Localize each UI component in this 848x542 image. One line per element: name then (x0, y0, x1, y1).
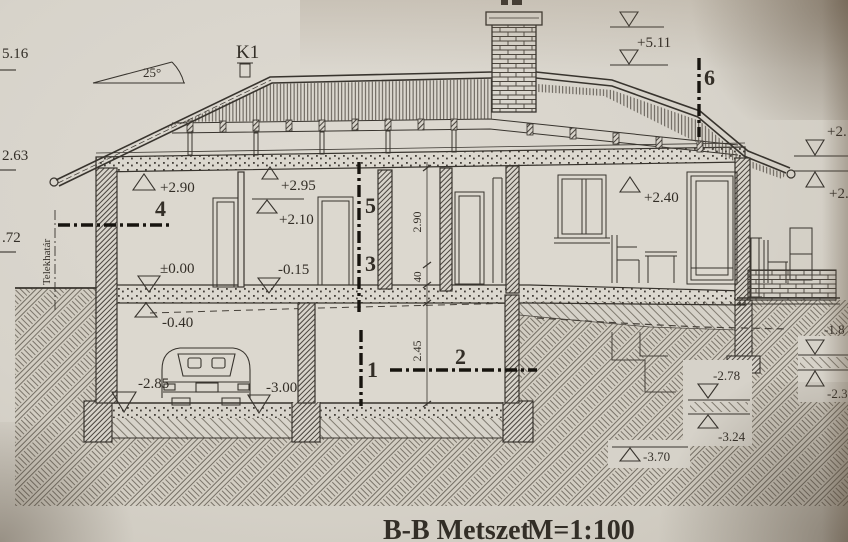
level-right-cut-lower: +2. (829, 186, 848, 202)
level-attic-left: +2.90 (160, 180, 195, 196)
window (554, 175, 610, 243)
gutter-right (787, 170, 795, 178)
roof-pitch-label: 25° (143, 65, 161, 80)
ridge-vent (237, 63, 253, 77)
terrain-2: -2.78 (713, 368, 740, 383)
dim-ground-height: 2.90 (410, 212, 424, 233)
property-line-label: Telekhatár (41, 239, 53, 286)
terrain-3: -3.24 (718, 429, 746, 444)
terrain-1: -1.8 (824, 322, 845, 337)
terrain-5: -3.70 (643, 449, 670, 464)
drawing-scale: M=1:100 (527, 515, 635, 542)
level-attic-right: +2.40 (644, 190, 679, 206)
level-garage-floor: -2.85 (138, 376, 169, 392)
title-block: B-B Metszet M=1:100 (383, 515, 635, 542)
section-mark-4: 4 (155, 196, 166, 221)
level-basement-floor: -3.00 (266, 380, 297, 396)
section-mark-1: 1 (367, 357, 378, 382)
level-right-cut-upper: +2. (827, 124, 847, 140)
level-zero: ±0.00 (160, 261, 194, 277)
section-mark-6: 6 (704, 65, 715, 90)
dim-slab: 40 (412, 271, 424, 283)
cut-label-fragment (512, 0, 522, 5)
level-attic-mid-low: +2.10 (279, 212, 314, 228)
section-drawing: 2.90 40 2.45 4 5 3 1 2 6 25° K1 Telekhat… (0, 0, 848, 542)
section-mark-3: 3 (365, 251, 376, 276)
chimney (486, 0, 542, 112)
window-mark-k1: K1 (236, 42, 259, 63)
architectural-section-photo: 2.90 40 2.45 4 5 3 1 2 6 25° K1 Telekhat… (0, 0, 848, 542)
dim-basement-height: 2.45 (410, 341, 424, 362)
terrace-table (790, 228, 812, 254)
level-attic-mid-up: +2.95 (281, 178, 316, 194)
level-basement-ceiling: -0.40 (162, 315, 193, 331)
level-floor-mid: -0.15 (278, 262, 309, 278)
level-cut-left-top: 5.16 (2, 46, 29, 62)
terrace (737, 270, 840, 304)
gutter-left (50, 178, 58, 186)
drawing-title: B-B Metszet (383, 515, 531, 542)
terrain-4: -2.3 (827, 386, 848, 401)
level-cut-left-mid: 2.63 (2, 148, 28, 164)
level-cut-left-low: .72 (2, 230, 21, 246)
section-mark-2: 2 (455, 344, 466, 369)
section-mark-5: 5 (365, 193, 376, 218)
parapet-wall (748, 270, 836, 300)
level-ridge: +5.11 (637, 35, 671, 51)
cut-label-fragment (501, 0, 508, 5)
roof-pitch-symbol (93, 62, 185, 83)
